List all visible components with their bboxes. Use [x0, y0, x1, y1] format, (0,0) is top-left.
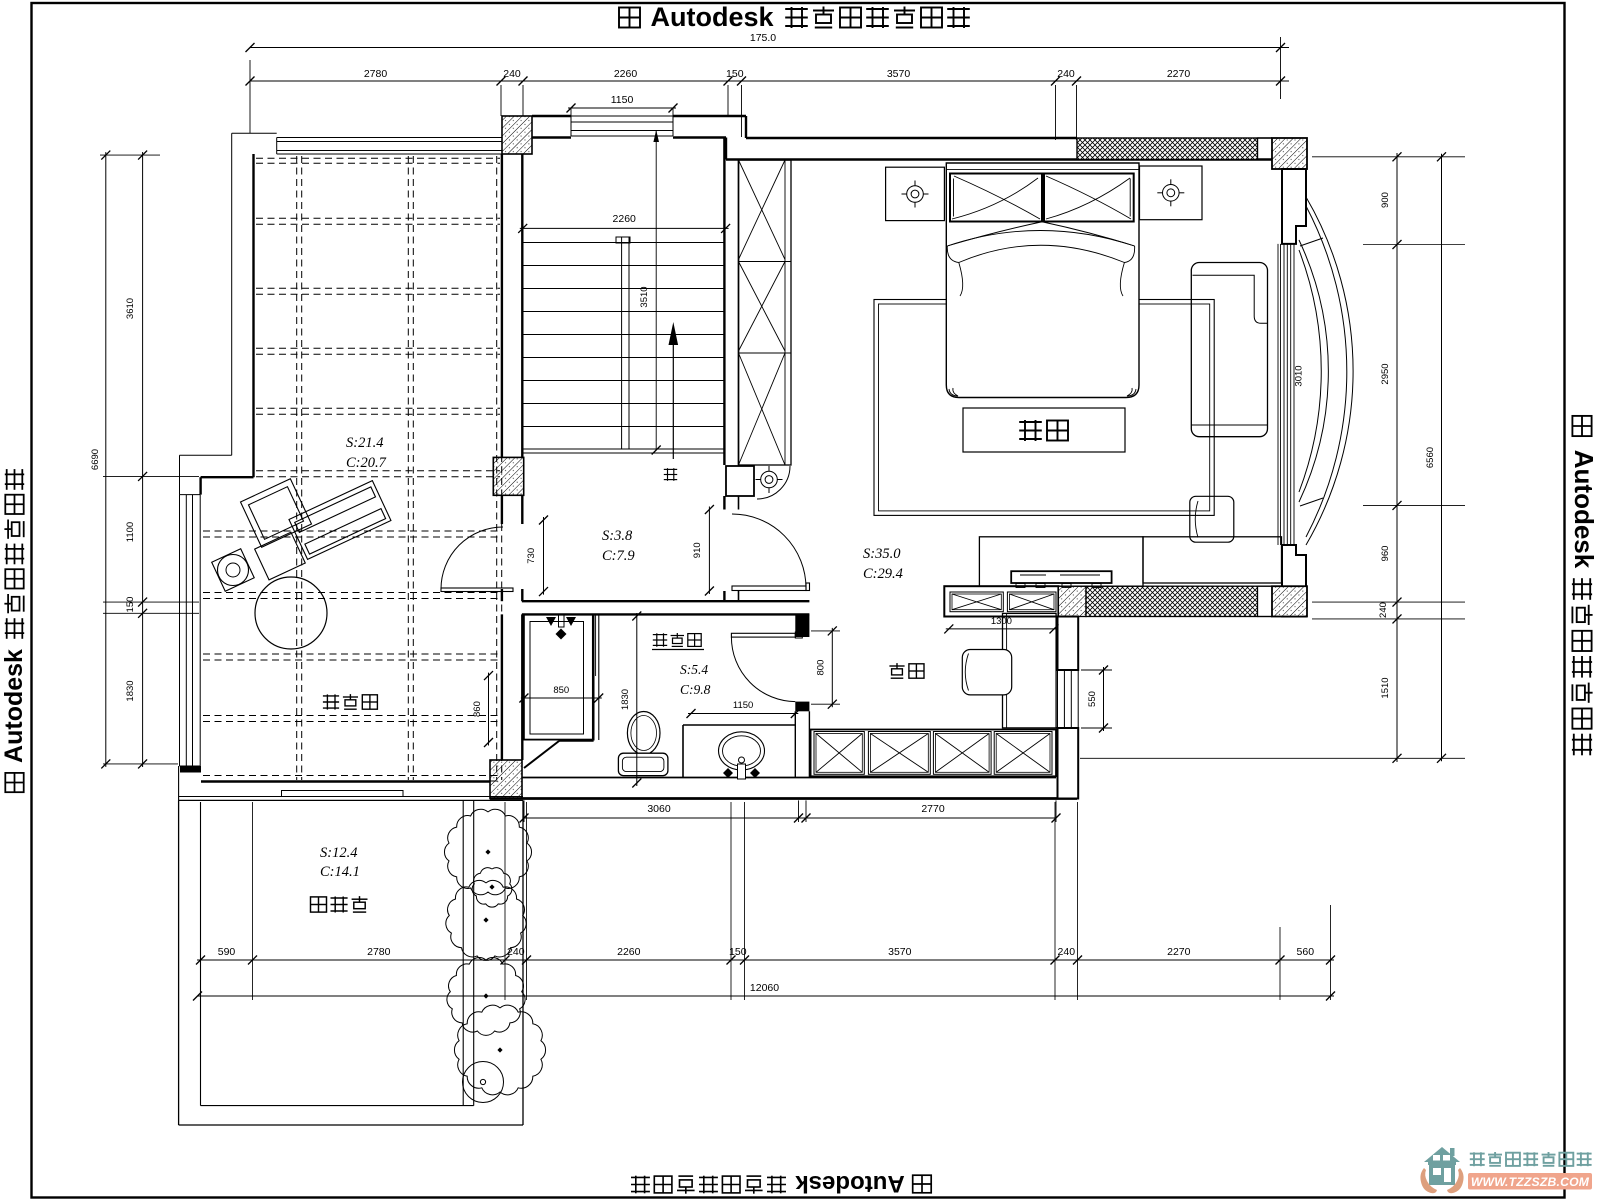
svg-text:C:14.1: C:14.1 [320, 864, 360, 880]
svg-text:1300: 1300 [991, 616, 1012, 627]
svg-text:1150: 1150 [611, 94, 634, 106]
svg-text:S:35.0: S:35.0 [863, 546, 901, 562]
svg-text:C:29.4: C:29.4 [863, 566, 903, 582]
svg-text:175.0: 175.0 [750, 32, 776, 44]
svg-text:S:12.4: S:12.4 [320, 845, 357, 861]
svg-text:6560: 6560 [1425, 447, 1436, 468]
svg-text:2770: 2770 [921, 803, 945, 815]
svg-text:730: 730 [526, 548, 537, 564]
svg-text:C:9.8: C:9.8 [680, 682, 711, 697]
svg-text:3570: 3570 [888, 946, 912, 958]
svg-text:C:7.9: C:7.9 [602, 548, 635, 564]
svg-text:WWW.TZZSZB.COM: WWW.TZZSZB.COM [1471, 1175, 1590, 1189]
svg-text:550: 550 [1087, 691, 1098, 707]
svg-text:150: 150 [125, 597, 136, 613]
svg-text:590: 590 [218, 946, 236, 958]
svg-text:Autodesk: Autodesk [795, 1170, 905, 1197]
svg-text:240: 240 [1057, 68, 1075, 80]
svg-text:2260: 2260 [614, 68, 638, 80]
svg-text:900: 900 [1380, 192, 1391, 208]
svg-text:2780: 2780 [364, 68, 388, 80]
svg-text:S:21.4: S:21.4 [346, 435, 383, 451]
svg-text:3570: 3570 [887, 68, 911, 80]
svg-text:960: 960 [1380, 546, 1391, 562]
svg-text:800: 800 [815, 660, 826, 676]
svg-text:2270: 2270 [1167, 68, 1191, 80]
svg-text:1150: 1150 [733, 700, 753, 711]
svg-text:150: 150 [726, 68, 744, 80]
svg-text:S:5.4: S:5.4 [680, 662, 708, 677]
svg-text:240: 240 [507, 946, 525, 958]
svg-text:3060: 3060 [647, 803, 671, 815]
svg-text:150: 150 [729, 946, 747, 958]
svg-text:Autodesk: Autodesk [650, 2, 774, 32]
svg-text:560: 560 [1297, 946, 1315, 958]
svg-text:S:3.8: S:3.8 [602, 528, 633, 544]
svg-text:6690: 6690 [90, 449, 101, 470]
svg-text:2260: 2260 [613, 213, 637, 225]
svg-text:240: 240 [1058, 946, 1076, 958]
svg-text:1830: 1830 [125, 680, 136, 701]
svg-text:1510: 1510 [1380, 677, 1391, 698]
svg-text:3610: 3610 [125, 298, 136, 319]
svg-text:240: 240 [503, 68, 521, 80]
svg-text:2260: 2260 [617, 946, 641, 958]
svg-text:2780: 2780 [367, 946, 391, 958]
svg-text:C:20.7: C:20.7 [346, 455, 387, 471]
svg-text:240: 240 [1378, 602, 1389, 618]
svg-text:1100: 1100 [125, 522, 136, 542]
svg-text:1830: 1830 [620, 689, 631, 710]
svg-text:3510: 3510 [639, 286, 650, 307]
svg-text:850: 850 [553, 685, 569, 696]
svg-text:910: 910 [692, 542, 703, 558]
svg-text:2270: 2270 [1167, 946, 1191, 958]
svg-text:2950: 2950 [1380, 363, 1391, 384]
svg-text:Autodesk: Autodesk [1569, 450, 1599, 569]
svg-text:12060: 12060 [750, 982, 779, 994]
svg-text:Autodesk: Autodesk [0, 649, 28, 763]
svg-text:860: 860 [472, 701, 483, 717]
svg-text:3010: 3010 [1294, 365, 1305, 386]
